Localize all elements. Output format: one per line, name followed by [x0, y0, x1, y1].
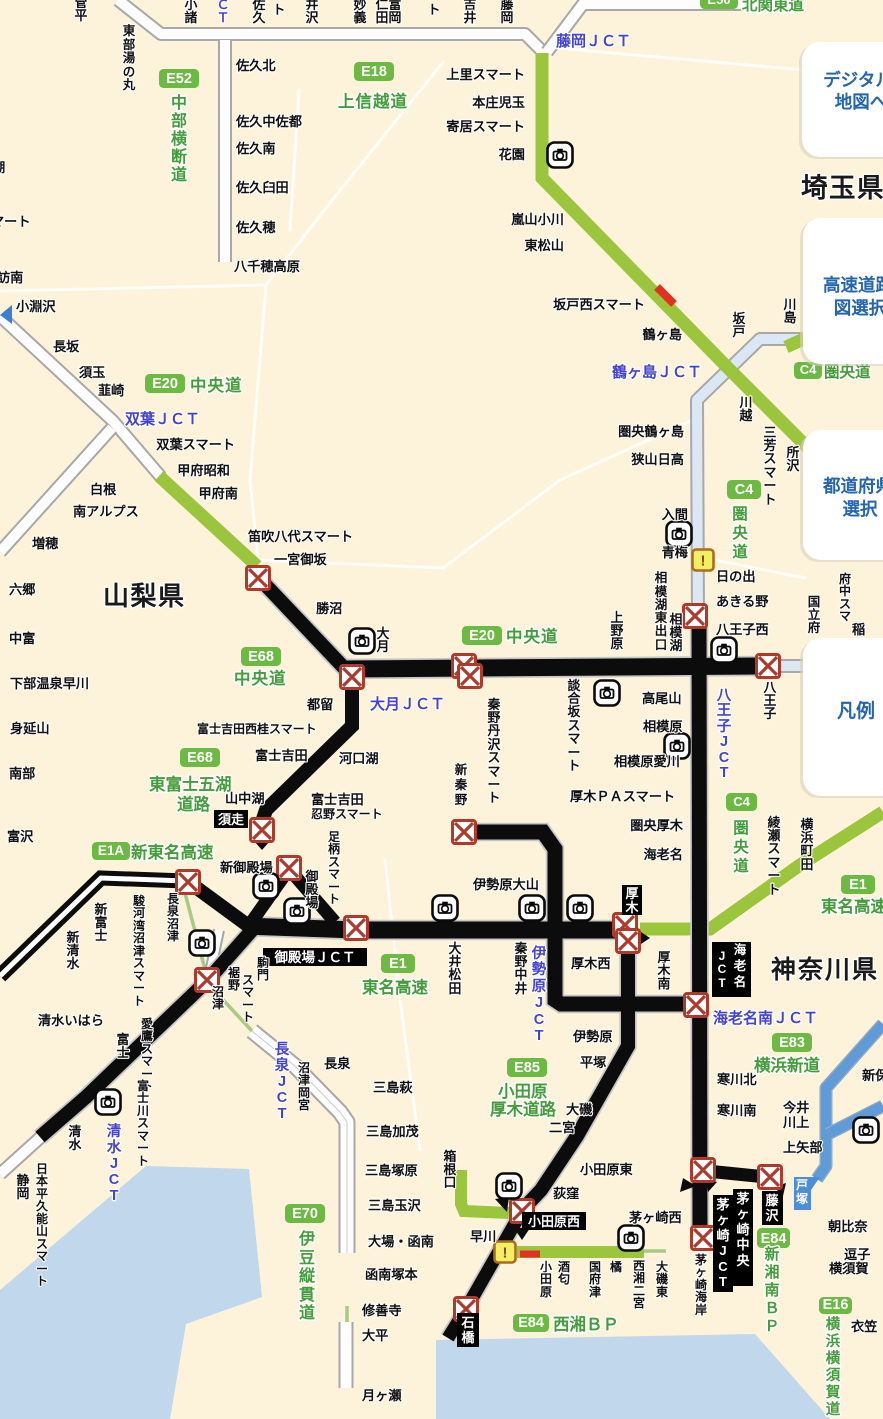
- svg-text:小田原: 小田原: [498, 1082, 548, 1101]
- svg-text:佐久中佐都: 佐久中佐都: [235, 113, 303, 129]
- svg-text:身延山: 身延山: [10, 720, 50, 736]
- svg-text:伊勢原: 伊勢原: [572, 1028, 613, 1044]
- svg-text:丹: 丹: [488, 723, 501, 738]
- svg-text:!: !: [701, 553, 706, 570]
- svg-text:横浜新道: 横浜新道: [754, 1055, 821, 1075]
- svg-text:磯: 磯: [656, 1271, 668, 1286]
- svg-text:ー: ー: [768, 868, 781, 883]
- svg-text:湖: 湖: [670, 638, 683, 653]
- svg-text:大平: 大平: [362, 1327, 388, 1343]
- svg-text:三島萩: 三島萩: [373, 1079, 413, 1095]
- svg-text:南アルプス: 南アルプス: [73, 503, 139, 519]
- svg-text:E50: E50: [707, 0, 730, 7]
- svg-text:戸: 戸: [796, 1178, 808, 1192]
- svg-text:忍野スマート: 忍野スマート: [311, 807, 383, 821]
- svg-text:双葉ＪＣＴ: 双葉ＪＣＴ: [125, 410, 200, 428]
- svg-text:T: T: [278, 1106, 287, 1122]
- svg-text:子: 子: [764, 706, 777, 721]
- svg-text:豆: 豆: [299, 1249, 315, 1267]
- svg-text:津: 津: [167, 928, 179, 943]
- svg-text:新: 新: [455, 762, 468, 777]
- svg-text:山梨県: 山梨県: [103, 581, 186, 611]
- svg-text:C: C: [719, 750, 730, 766]
- svg-text:ト: ト: [36, 1274, 48, 1288]
- svg-text:ト: ト: [137, 1154, 149, 1168]
- svg-text:横: 横: [171, 129, 188, 148]
- svg-text:笛吹八代スマート: 笛吹八代スマート: [247, 528, 353, 544]
- svg-text:!: !: [503, 1245, 508, 1262]
- svg-text:南: 南: [764, 1281, 779, 1299]
- svg-text:宮: 宮: [633, 1295, 645, 1310]
- svg-text:ス: ス: [768, 841, 781, 856]
- svg-text:C4: C4: [735, 482, 754, 498]
- svg-text:道: 道: [171, 165, 187, 184]
- svg-text:海老名: 海老名: [643, 846, 683, 862]
- svg-text:小田原東: 小田原東: [580, 1162, 634, 1177]
- svg-text:早川: 早川: [470, 1229, 496, 1244]
- svg-text:マ: マ: [242, 985, 254, 999]
- svg-text:J: J: [110, 1156, 118, 1172]
- svg-text:府: 府: [808, 620, 821, 635]
- svg-text:野: 野: [228, 978, 240, 992]
- svg-text:T: T: [719, 1274, 727, 1289]
- svg-text:佐久北: 佐久北: [235, 57, 276, 73]
- svg-text:勢: 勢: [532, 960, 547, 978]
- svg-text:賀: 賀: [825, 1383, 841, 1401]
- svg-text:町: 町: [801, 843, 814, 858]
- svg-text:E1A: E1A: [98, 843, 125, 858]
- svg-text:小淵沢: 小淵沢: [16, 298, 56, 314]
- svg-text:下部温泉早川: 下部温泉早川: [10, 675, 89, 691]
- svg-text:富士吉田西桂スマート: 富士吉田西桂スマート: [197, 721, 317, 736]
- svg-text:C: C: [277, 1090, 288, 1106]
- svg-text:図選択: 図選択: [834, 298, 883, 318]
- svg-text:王: 王: [717, 702, 732, 719]
- svg-text:寒川北: 寒川北: [717, 1071, 757, 1087]
- svg-text:沢: 沢: [765, 1208, 779, 1223]
- svg-text:J: J: [719, 1243, 726, 1258]
- svg-text:央: 央: [732, 523, 748, 542]
- svg-text:E52: E52: [166, 71, 192, 87]
- svg-text:三島玉沢: 三島玉沢: [368, 1197, 422, 1213]
- svg-text:木: 木: [624, 900, 639, 915]
- svg-text:伊: 伊: [298, 1229, 315, 1248]
- svg-text:E68: E68: [187, 750, 213, 766]
- svg-text:Ｐ: Ｐ: [764, 1318, 779, 1335]
- svg-text:増穂: 増穂: [32, 535, 59, 551]
- svg-text:道路: 道路: [177, 794, 211, 814]
- svg-text:花園: 花園: [499, 146, 525, 162]
- svg-text:勝沼: 勝沼: [316, 600, 342, 616]
- svg-text:ト: ト: [428, 2, 441, 17]
- svg-text:嵐山小川: 嵐山小川: [511, 212, 564, 227]
- svg-text:士: 士: [137, 1090, 149, 1105]
- svg-text:富沢: 富沢: [7, 828, 34, 844]
- svg-text:原: 原: [540, 1285, 552, 1299]
- svg-text:双葉スマート: 双葉スマート: [156, 436, 235, 452]
- svg-text:道: 道: [299, 1303, 315, 1322]
- svg-text:中: 中: [736, 1237, 749, 1252]
- svg-text:ト: ト: [768, 882, 781, 897]
- svg-text:ヶ: ヶ: [695, 1265, 707, 1279]
- svg-text:西湘ＢＰ: 西湘ＢＰ: [553, 1314, 619, 1334]
- svg-text:津: 津: [589, 1284, 601, 1299]
- svg-text:高速道路: 高速道路: [823, 275, 883, 295]
- svg-text:横: 横: [826, 1349, 841, 1367]
- svg-text:月ヶ瀬: 月ヶ瀬: [361, 1387, 402, 1403]
- svg-text:湘: 湘: [633, 1270, 645, 1285]
- svg-text:甲府昭和: 甲府昭和: [177, 462, 230, 478]
- svg-text:湖: 湖: [0, 160, 5, 175]
- svg-text:鶴ヶ島: 鶴ヶ島: [642, 326, 682, 342]
- svg-text:海: 海: [695, 1289, 707, 1304]
- svg-text:立: 立: [808, 607, 821, 622]
- svg-text:塚: 塚: [796, 1192, 808, 1206]
- svg-text:大磯: 大磯: [566, 1101, 592, 1117]
- svg-text:原: 原: [611, 636, 624, 651]
- svg-text:川上: 川上: [782, 1115, 809, 1130]
- svg-text:八: 八: [716, 688, 732, 704]
- svg-text:相模原: 相模原: [643, 718, 683, 734]
- svg-text:浜: 浜: [826, 1332, 841, 1350]
- svg-text:中: 中: [171, 93, 187, 112]
- svg-text:諸: 諸: [185, 10, 198, 25]
- svg-text:富士吉田: 富士吉田: [255, 747, 308, 763]
- svg-text:ー: ー: [764, 478, 777, 493]
- svg-text:ヶ: ヶ: [716, 1212, 729, 1227]
- svg-text:北関東道: 北関東道: [742, 0, 805, 14]
- svg-text:平: 平: [75, 8, 88, 23]
- svg-text:門: 門: [257, 968, 269, 982]
- svg-text:圏: 圏: [733, 819, 749, 837]
- svg-text:修善寺: 修善寺: [361, 1302, 402, 1318]
- svg-text:ス: ス: [488, 750, 501, 765]
- svg-text:茅: 茅: [736, 1191, 749, 1206]
- svg-text:ト: ト: [133, 994, 145, 1008]
- svg-text:E16: E16: [823, 1297, 849, 1313]
- svg-text:ス: ス: [133, 956, 145, 970]
- svg-text:E84: E84: [518, 1315, 544, 1331]
- svg-text:ト: ト: [568, 758, 581, 773]
- svg-text:上矢部: 上矢部: [783, 1139, 823, 1155]
- svg-text:道: 道: [732, 542, 748, 561]
- svg-text:地図へ: 地図へ: [835, 92, 883, 112]
- svg-text:久: 久: [253, 10, 266, 25]
- svg-text:函南塚本: 函南塚本: [365, 1266, 419, 1282]
- svg-text:水: 水: [69, 1137, 83, 1152]
- svg-text:E20: E20: [152, 376, 178, 392]
- svg-text:田: 田: [801, 857, 814, 872]
- svg-text:J: J: [720, 734, 728, 750]
- svg-text:士: 士: [117, 1045, 130, 1060]
- svg-text:新御殿場: 新御殿場: [220, 859, 273, 875]
- svg-text:J: J: [278, 1074, 286, 1090]
- svg-text:須走: 須走: [217, 812, 245, 827]
- svg-text:河口湖: 河口湖: [339, 750, 379, 766]
- svg-text:水: 水: [107, 1138, 122, 1156]
- svg-text:子: 子: [717, 718, 732, 735]
- svg-text:マ: マ: [36, 1249, 48, 1263]
- svg-text:狭山日高: 狭山日高: [630, 451, 684, 467]
- svg-text:T: T: [718, 976, 726, 990]
- svg-text:ト: ト: [273, 2, 286, 17]
- svg-text:道: 道: [826, 1400, 841, 1418]
- svg-text:小田原西: 小田原西: [528, 1214, 580, 1229]
- svg-text:あきる野: あきる野: [716, 594, 769, 609]
- svg-text:縦: 縦: [299, 1266, 316, 1285]
- svg-text:名: 名: [734, 974, 747, 989]
- svg-text:一宮御坂: 一宮御坂: [274, 551, 328, 567]
- svg-text:ト: ト: [488, 790, 501, 805]
- svg-text:坂戸西スマート: 坂戸西スマート: [553, 296, 645, 312]
- svg-text:マ: マ: [328, 867, 340, 881]
- svg-text:富士吉田: 富士吉田: [311, 791, 364, 807]
- svg-text:J: J: [719, 949, 726, 963]
- svg-text:厚木西: 厚木西: [571, 955, 611, 971]
- svg-text:高尾山: 高尾山: [642, 690, 682, 706]
- svg-text:津: 津: [212, 996, 224, 1011]
- svg-text:士: 士: [95, 928, 108, 943]
- svg-text:津: 津: [298, 1072, 310, 1087]
- svg-text:義: 義: [354, 10, 367, 25]
- svg-text:平塚: 平塚: [580, 1055, 607, 1070]
- svg-text:府: 府: [589, 1271, 601, 1286]
- svg-text:衣笠: 衣笠: [851, 1318, 877, 1334]
- svg-text:八千穂高原: 八千穂高原: [234, 258, 300, 274]
- svg-text:泉: 泉: [275, 1056, 290, 1074]
- svg-text:本: 本: [36, 1173, 48, 1188]
- svg-text:田: 田: [449, 981, 462, 996]
- svg-text:沢: 沢: [787, 458, 800, 473]
- svg-text:ト: ト: [328, 892, 340, 906]
- svg-text:藤岡ＪＣＴ: 藤岡ＪＣＴ: [556, 32, 631, 50]
- svg-text:伊勢原大山: 伊勢原大山: [472, 876, 539, 892]
- svg-text:逗子: 逗子: [844, 1247, 870, 1262]
- svg-text:清: 清: [107, 1122, 122, 1140]
- svg-text:都道府県: 都道府県: [822, 476, 883, 496]
- svg-text:厚: 厚: [625, 886, 638, 901]
- svg-text:山中湖: 山中湖: [225, 790, 265, 806]
- svg-text:甲府南: 甲府南: [198, 485, 238, 501]
- svg-text:六郷: 六郷: [9, 581, 36, 597]
- svg-text:原: 原: [532, 978, 547, 995]
- svg-text:東名高速: 東名高速: [362, 977, 429, 997]
- svg-text:坂: 坂: [568, 704, 581, 719]
- svg-text:三島加茂: 三島加茂: [366, 1123, 419, 1139]
- svg-text:長: 長: [275, 1041, 290, 1058]
- svg-text:青梅: 青梅: [662, 544, 688, 560]
- svg-text:ー: ー: [133, 981, 145, 995]
- svg-text:沼: 沼: [133, 931, 145, 945]
- svg-text:河: 河: [132, 905, 145, 920]
- svg-text:海: 海: [734, 942, 747, 957]
- svg-text:C: C: [109, 1172, 120, 1188]
- svg-text:凡例: 凡例: [837, 699, 875, 722]
- svg-text:口: 口: [444, 1175, 457, 1190]
- svg-text:鶴ヶ島ＪＣＴ: 鶴ヶ島ＪＣＴ: [612, 363, 702, 381]
- svg-text:長泉: 長泉: [324, 1055, 351, 1071]
- svg-text:T: T: [535, 1028, 544, 1044]
- svg-text:選択: 選択: [843, 499, 878, 519]
- svg-text:東富士五湖: 東富士五湖: [149, 774, 232, 794]
- svg-text:島: 島: [784, 310, 797, 325]
- svg-text:上信越道: 上信越道: [338, 91, 408, 111]
- svg-text:訪南: 訪南: [0, 269, 23, 285]
- svg-text:東: 東: [655, 610, 668, 625]
- svg-text:石: 石: [460, 1315, 474, 1330]
- svg-text:口: 口: [655, 638, 668, 652]
- svg-text:橘: 橘: [609, 1259, 622, 1274]
- svg-text:横: 横: [826, 1315, 841, 1333]
- svg-text:寄居スマート: 寄居スマート: [446, 118, 525, 134]
- svg-text:須玉: 須玉: [78, 365, 105, 380]
- svg-text:松: 松: [449, 967, 462, 982]
- svg-text:佐久南: 佐久南: [235, 140, 276, 156]
- svg-text:E1: E1: [849, 877, 867, 893]
- svg-text:茅: 茅: [716, 1197, 729, 1212]
- svg-text:日の出: 日の出: [716, 568, 756, 584]
- svg-text:荻窪: 荻窪: [553, 1185, 579, 1201]
- svg-text:田: 田: [376, 10, 389, 25]
- svg-text:南: 南: [658, 976, 671, 991]
- svg-text:中央道: 中央道: [234, 668, 287, 688]
- svg-text:ス: ス: [137, 1116, 149, 1130]
- svg-text:白根: 白根: [90, 481, 117, 497]
- svg-text:T: T: [110, 1188, 119, 1204]
- svg-text:マ: マ: [568, 731, 581, 746]
- svg-text:佐久穂: 佐久穂: [235, 219, 276, 235]
- svg-text:湘: 湘: [764, 1263, 779, 1281]
- svg-text:長坂: 長坂: [53, 338, 80, 354]
- svg-text:圏央鶴ヶ島: 圏央鶴ヶ島: [618, 423, 684, 439]
- svg-text:C: C: [718, 962, 727, 976]
- svg-text:Ｂ: Ｂ: [764, 1300, 779, 1317]
- svg-text:C: C: [534, 1012, 545, 1028]
- svg-text:今井: 今井: [783, 1099, 809, 1115]
- svg-text:匂: 匂: [557, 1271, 570, 1286]
- svg-text:大場・函南: 大場・函南: [368, 1233, 434, 1249]
- svg-text:の: の: [123, 65, 136, 79]
- svg-text:茅ヶ崎西: 茅ヶ崎西: [629, 1209, 682, 1225]
- svg-text:貫: 貫: [299, 1285, 315, 1304]
- svg-text:韮崎: 韮崎: [98, 382, 124, 398]
- svg-text:戸: 戸: [733, 324, 746, 339]
- svg-text:海老名南ＪＣＴ: 海老名南ＪＣＴ: [713, 1009, 818, 1027]
- svg-text:相模原愛川: 相模原愛川: [614, 753, 680, 769]
- svg-text:新東名高速: 新東名高速: [131, 842, 214, 862]
- svg-text:丸: 丸: [122, 77, 136, 92]
- svg-text:国: 国: [808, 595, 821, 609]
- svg-text:道: 道: [733, 856, 749, 875]
- svg-text:二宮: 二宮: [549, 1119, 575, 1135]
- svg-text:E18: E18: [361, 64, 387, 80]
- svg-text:藤: 藤: [765, 1193, 779, 1208]
- svg-text:佐久臼田: 佐久臼田: [235, 179, 289, 195]
- svg-text:E70: E70: [292, 1206, 318, 1222]
- svg-text:神奈川県: 神奈川県: [771, 956, 879, 984]
- svg-text:E85: E85: [514, 1060, 540, 1076]
- svg-text:本庄児玉: 本庄児玉: [472, 94, 525, 110]
- svg-text:新保: 新保: [862, 1067, 883, 1083]
- svg-text:都留: 都留: [306, 696, 333, 712]
- svg-text:E83: E83: [779, 1035, 805, 1051]
- svg-text:T: T: [720, 765, 729, 781]
- svg-text:泉: 泉: [167, 903, 180, 918]
- svg-text:部: 部: [123, 37, 136, 52]
- svg-text:入間: 入間: [662, 507, 688, 522]
- svg-text:東名高速: 東名高速: [821, 896, 883, 916]
- svg-text:八王子西: 八王子西: [716, 622, 769, 637]
- svg-text:宮: 宮: [298, 1097, 310, 1112]
- svg-text:湖: 湖: [655, 597, 668, 612]
- svg-text:岡: 岡: [389, 10, 402, 25]
- svg-text:中: 中: [515, 967, 528, 982]
- svg-text:老: 老: [733, 958, 747, 973]
- svg-text:寒川南: 寒川南: [717, 1102, 757, 1118]
- svg-text:崎: 崎: [716, 1228, 729, 1243]
- svg-text:田: 田: [540, 1272, 552, 1286]
- svg-text:久: 久: [36, 1198, 49, 1213]
- svg-text:水: 水: [67, 956, 81, 971]
- svg-text:山: 山: [36, 1223, 48, 1238]
- svg-text:Ｔ: Ｔ: [216, 10, 229, 25]
- svg-text:月: 月: [376, 639, 390, 654]
- svg-text:厚木ＰＡスマート: 厚木ＰＡスマート: [570, 788, 675, 804]
- svg-text:中富: 中富: [9, 630, 35, 646]
- svg-text:井: 井: [464, 10, 477, 25]
- svg-text:南部: 南部: [9, 765, 35, 781]
- svg-text:ス: ス: [764, 451, 777, 466]
- svg-text:中: 中: [839, 583, 851, 598]
- svg-text:朝比奈: 朝比奈: [828, 1218, 868, 1234]
- svg-text:越: 越: [739, 408, 753, 423]
- svg-text:圏央厚木: 圏央厚木: [630, 817, 684, 833]
- svg-text:東: 東: [123, 23, 136, 38]
- svg-text:新: 新: [764, 1245, 779, 1263]
- svg-text:須: 須: [825, 1367, 841, 1384]
- svg-text:E20: E20: [469, 628, 495, 644]
- svg-text:柄: 柄: [328, 841, 340, 856]
- svg-text:湯: 湯: [123, 50, 136, 65]
- svg-text:マート: マート: [0, 214, 31, 229]
- svg-text:横須賀: 横須賀: [829, 1260, 869, 1276]
- svg-text:東松山: 東松山: [524, 237, 564, 253]
- svg-text:岡: 岡: [17, 1186, 30, 1201]
- svg-text:マ: マ: [839, 609, 851, 623]
- svg-text:ー: ー: [137, 1141, 149, 1155]
- svg-text:場: 場: [306, 895, 319, 910]
- svg-text:埼玉県: 埼玉県: [801, 173, 883, 203]
- svg-text:秦: 秦: [454, 777, 468, 792]
- svg-text:清水いはら: 清水いはら: [38, 1012, 104, 1028]
- svg-text:稲: 稲: [852, 621, 865, 637]
- svg-text:中央道: 中央道: [190, 375, 243, 395]
- svg-text:中央道: 中央道: [506, 626, 559, 646]
- svg-text:厚木道路: 厚木道路: [490, 1099, 557, 1119]
- svg-text:央: 央: [733, 837, 749, 856]
- svg-text:C: C: [718, 1259, 728, 1274]
- svg-text:ト: ト: [242, 1010, 254, 1024]
- svg-text:大月ＪＣＴ: 大月ＪＣＴ: [370, 695, 445, 713]
- svg-text:C4: C4: [733, 794, 750, 809]
- svg-text:マ: マ: [141, 1054, 153, 1068]
- svg-text:E68: E68: [248, 649, 274, 665]
- svg-text:ト: ト: [764, 492, 777, 507]
- svg-text:上里スマート: 上里スマート: [446, 67, 525, 82]
- svg-text:東: 東: [656, 1284, 668, 1299]
- svg-text:橋: 橋: [461, 1330, 475, 1345]
- svg-text:野: 野: [455, 793, 468, 807]
